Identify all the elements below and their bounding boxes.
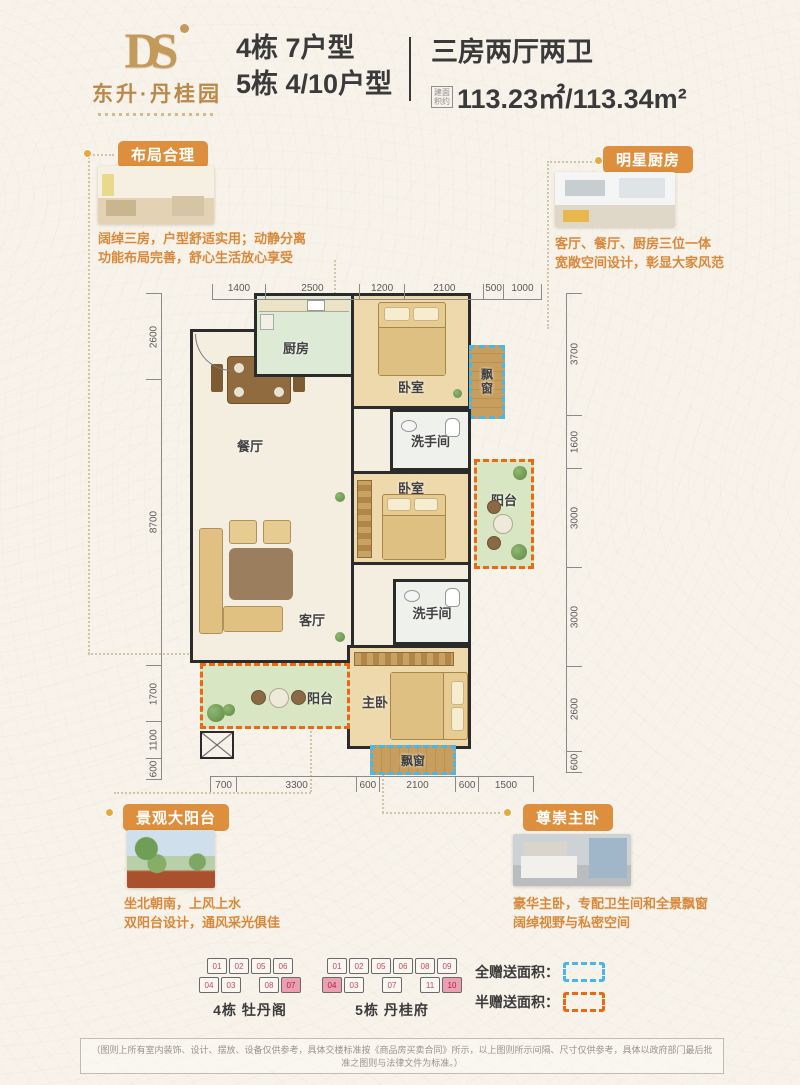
plant-icon — [453, 389, 462, 398]
callout-layout-line1: 阔绰三房，户型舒适实用；动静分离 — [98, 229, 306, 248]
dimension-segment: 500 — [483, 284, 503, 299]
bathroom-2: 洗手间 — [393, 579, 471, 645]
header-divider — [409, 37, 411, 101]
unit-cell: 02 — [349, 958, 369, 974]
bay-window-bottom: 飘窗 — [370, 745, 456, 775]
dimension-segment: 1700 — [146, 665, 161, 722]
dimension-segment: 1000 — [503, 284, 542, 299]
dimension-segment: 3700 — [567, 293, 582, 415]
dimension-value: 2500 — [301, 283, 323, 294]
toilet-icon — [445, 588, 460, 607]
unit-cell: 05 — [251, 958, 271, 974]
table-icon — [269, 688, 289, 708]
ruler-bottom: 700330060021006001500 — [210, 776, 534, 792]
dimension-value: 2600 — [148, 325, 159, 347]
building-diagram-5: 0102050608090403071110 5栋 丹桂府 — [312, 958, 472, 1020]
plant-icon — [335, 492, 345, 502]
dimension-segment: 3300 — [236, 777, 356, 792]
living-dining-room: 餐厅 客厅 — [190, 329, 354, 663]
dimension-segment: 1200 — [359, 284, 405, 299]
bed-icon — [382, 494, 446, 560]
dimension-value: 600 — [459, 780, 476, 791]
dimension-segment: 3000 — [567, 468, 582, 567]
building-4-units: 0102050604030807 — [186, 958, 314, 993]
dimension-segment: 2600 — [146, 293, 161, 379]
room-label: 飘窗 — [401, 752, 425, 769]
logo-name: 东升·丹桂园 — [82, 78, 232, 108]
unit-gap — [366, 977, 380, 993]
sink-icon — [307, 300, 325, 311]
armchair-icon — [263, 520, 291, 544]
dimension-value: 600 — [360, 780, 377, 791]
logo-tagline-decoration — [98, 113, 216, 116]
stool-icon — [487, 536, 501, 550]
dimension-segment: 2600 — [567, 666, 582, 752]
dimension-value: 3700 — [569, 343, 580, 365]
plant-icon — [223, 704, 235, 716]
unit-cell: 03 — [221, 977, 241, 993]
unit-gap — [404, 977, 418, 993]
dimension-value: 1100 — [148, 730, 159, 752]
connector-line — [547, 161, 549, 329]
dimension-value: 500 — [485, 283, 502, 294]
building-unit-title: 4栋 7户型 5栋 4/10户型 — [236, 30, 392, 102]
building-5-units: 0102050608090403071110 — [312, 958, 472, 993]
callout-balcony-line2: 双阳台设计，通风采光俱佳 — [124, 913, 280, 932]
layout-type-title: 三房两厅两卫 — [431, 30, 687, 69]
plant-icon — [335, 632, 345, 642]
gift-area-legend: 全赠送面积： 半赠送面积： — [475, 962, 605, 1022]
connector-line — [382, 812, 500, 814]
room-label: 卧室 — [398, 377, 424, 396]
dimension-segment: 600 — [356, 777, 379, 792]
dimension-value: 1400 — [228, 283, 250, 294]
callout-master-badge: 尊崇主卧 — [523, 804, 613, 831]
legend-half-swatch-icon — [563, 992, 605, 1012]
dimension-value: 8700 — [148, 511, 159, 533]
dimension-segment: 600 — [455, 777, 478, 792]
legend-half-label: 半赠送面积： — [475, 992, 559, 1012]
callout-balcony-badge: 景观大阳台 — [123, 804, 229, 831]
disclaimer-text: （图则上所有室内装饰、设计、摆放、设备仅供参考，具体交楼标准按《商品房买卖合同》… — [80, 1038, 724, 1074]
stool-icon — [291, 690, 306, 705]
kitchen-photo — [555, 172, 675, 227]
dimension-segment: 8700 — [146, 379, 161, 665]
building-diagram-4: 0102050604030807 4栋 牡丹阁 — [186, 958, 314, 1020]
unit-cell: 05 — [371, 958, 391, 974]
callout-balcony-line1: 坐北朝南，上风上水 — [124, 894, 280, 913]
kitchen-room: 厨房 — [254, 293, 354, 377]
dimension-segment: 1100 — [146, 721, 161, 758]
dimension-segment: 2100 — [404, 284, 483, 299]
dimension-value: 1500 — [495, 780, 517, 791]
dimension-segment: 600 — [567, 751, 582, 773]
balcony-photo — [127, 830, 215, 888]
sofa-icon — [199, 528, 223, 634]
stool-icon — [251, 690, 266, 705]
plant-icon — [511, 544, 527, 560]
unit-cell: 09 — [437, 958, 457, 974]
dimension-value: 2100 — [406, 780, 428, 791]
building-line-2: 5栋 4/10户型 — [236, 66, 392, 102]
ruler-right: 37001600300030002600600 — [566, 293, 582, 773]
room-label: 厨房 — [283, 338, 309, 357]
bathroom-1: 洗手间 — [390, 409, 471, 471]
callout-kitchen-badge: 明星厨房 — [603, 146, 693, 173]
bedroom-middle: 卧室 — [351, 471, 471, 565]
callout-kitchen-line2: 宽敞空间设计，彰显大家风范 — [555, 253, 724, 272]
callout-kitchen: 明星厨房 客厅、餐厅、厨房三位一体 宽敞空间设计，彰显大家风范 — [553, 146, 793, 271]
dimension-value: 1600 — [569, 431, 580, 453]
connector-dot-icon — [84, 150, 91, 157]
dimension-segment: 1500 — [478, 777, 534, 792]
room-label: 客厅 — [299, 610, 325, 629]
unit-cell: 08 — [259, 977, 279, 993]
master-bedroom-photo — [513, 834, 631, 886]
room-label: 飘窗 — [479, 368, 496, 396]
room-label: 主卧 — [362, 692, 388, 711]
armchair-icon — [229, 520, 257, 544]
plant-icon — [207, 704, 225, 722]
brand-logo: DS 东升·丹桂园 — [82, 24, 232, 116]
stool-icon — [487, 500, 501, 514]
dimension-value: 3000 — [569, 606, 580, 628]
unit-cell: 06 — [273, 958, 293, 974]
balcony-left: 阳台 — [200, 663, 350, 729]
callout-layout-line2: 功能布局完善，舒心生活放心享受 — [98, 248, 306, 267]
connector-line — [88, 150, 90, 654]
legend-full-label: 全赠送面积： — [475, 962, 559, 982]
dimension-value: 3300 — [286, 780, 308, 791]
ruler-left: 2600870017001100600 — [146, 293, 162, 780]
bedroom-top: 卧室 — [351, 293, 471, 409]
connector-line — [114, 792, 311, 794]
dimension-segment: 3000 — [567, 567, 582, 666]
unit-cell: 06 — [393, 958, 413, 974]
unit-cell: 04 — [199, 977, 219, 993]
unit-cell: 01 — [327, 958, 347, 974]
unit-cell: 07 — [382, 977, 402, 993]
plant-icon — [513, 466, 527, 480]
bay-window-top: 飘窗 — [469, 345, 505, 419]
building-5-name: 5栋 丹桂府 — [312, 1000, 472, 1020]
wardrobe-icon — [357, 480, 372, 558]
logo-monogram: DS — [82, 24, 232, 76]
callout-balcony: 景观大阳台 坐北朝南，上风上水 双阳台设计，通风采光俱佳 — [104, 804, 354, 929]
dimension-value: 1200 — [371, 283, 393, 294]
dimension-value: 2600 — [569, 698, 580, 720]
bed-icon — [390, 672, 468, 740]
room-label: 阳台 — [307, 688, 333, 707]
living-room-photo — [98, 166, 214, 224]
master-bedroom: 主卧 — [347, 645, 471, 749]
ruler-top: 14002500120021005001000 — [212, 284, 542, 300]
rug-icon — [229, 548, 293, 600]
floorplan: 餐厅 客厅 厨房 卧室 — [180, 293, 542, 780]
toilet-icon — [445, 418, 460, 437]
sink-icon — [401, 420, 417, 432]
dimension-value: 600 — [569, 754, 580, 771]
entry-door-arc-icon — [195, 334, 232, 371]
dimension-segment: 600 — [146, 758, 161, 780]
callout-layout-badge: 布局合理 — [118, 141, 208, 168]
dimension-segment: 1400 — [212, 284, 265, 299]
shaft-icon — [200, 731, 234, 759]
callout-master: 尊崇主卧 豪华主卧，专配卫生间和全景飘窗 阔绰视野与私密空间 — [505, 804, 755, 929]
sink-icon — [404, 590, 420, 602]
dimension-value: 700 — [215, 780, 232, 791]
callout-master-line2: 阔绰视野与私密空间 — [513, 913, 708, 932]
logo-dot-icon — [180, 24, 189, 33]
area-stamp: 建面 积约 — [431, 86, 453, 108]
dimension-value: 2100 — [433, 283, 455, 294]
building-line-1: 4栋 7户型 — [236, 30, 392, 66]
unit-cell: 07 — [281, 977, 301, 993]
kitchen-counter-icon — [259, 298, 349, 312]
dimension-segment: 1600 — [567, 415, 582, 468]
balcony-right: 阳台 — [474, 459, 534, 569]
dimension-segment: 2100 — [379, 777, 456, 792]
unit-cell: 11 — [420, 977, 440, 993]
unit-cell: 04 — [322, 977, 342, 993]
building-4-name: 4栋 牡丹阁 — [186, 1000, 314, 1020]
dimension-value: 1700 — [148, 682, 159, 704]
callout-kitchen-line1: 客厅、餐厅、厨房三位一体 — [555, 234, 724, 253]
legend-full-swatch-icon — [563, 962, 605, 982]
fridge-icon — [260, 314, 274, 330]
dimension-value: 3000 — [569, 507, 580, 529]
unit-cell: 03 — [344, 977, 364, 993]
unit-cell: 01 — [207, 958, 227, 974]
dimension-value: 1000 — [511, 283, 533, 294]
unit-cell: 08 — [415, 958, 435, 974]
table-icon — [493, 514, 513, 534]
dimension-value: 600 — [148, 761, 159, 778]
flyer-page: DS 东升·丹桂园 4栋 7户型 5栋 4/10户型 三房两厅两卫 建面 积约 … — [0, 0, 800, 1085]
sofa-icon — [223, 606, 283, 632]
callout-master-line1: 豪华主卧，专配卫生间和全景飘窗 — [513, 894, 708, 913]
unit-cell: 02 — [229, 958, 249, 974]
bed-icon — [378, 302, 446, 376]
unit-gap — [243, 977, 257, 993]
area-value: 113.23㎡/113.34m² — [457, 77, 687, 116]
unit-cell: 10 — [442, 977, 462, 993]
room-label: 餐厅 — [237, 436, 263, 455]
wardrobe-icon — [354, 652, 454, 666]
dimension-segment: 700 — [210, 777, 236, 792]
header-type-area: 三房两厅两卫 建面 积约 113.23㎡/113.34m² — [431, 30, 687, 116]
callout-layout: 布局合理 阔绰三房，户型舒适实用；动静分离 功能布局完善，舒心生活放心享受 — [98, 141, 338, 261]
dimension-segment: 2500 — [265, 284, 359, 299]
